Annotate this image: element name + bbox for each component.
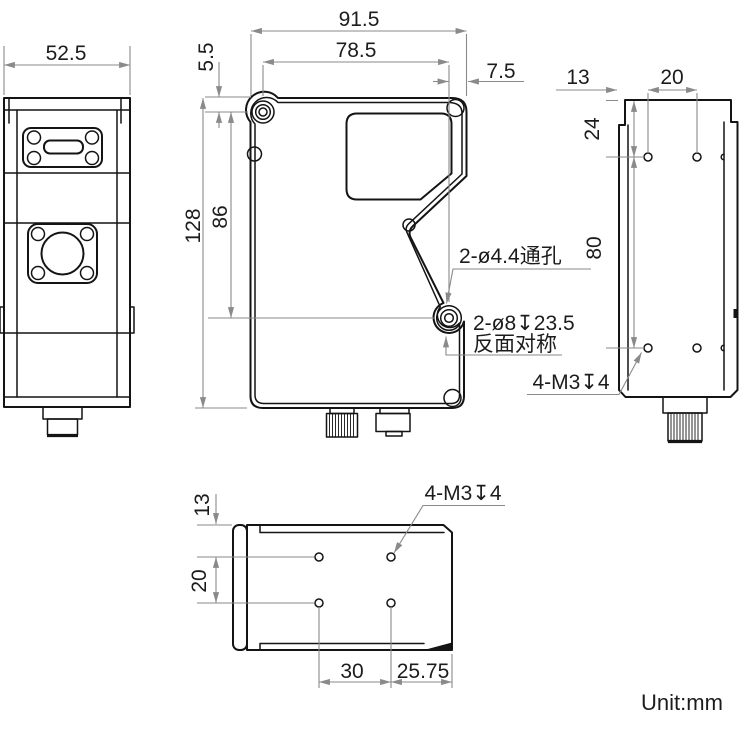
plate-screw-hole [86,152,99,165]
right-tapped-hole [644,344,652,352]
dimension-drawing: 52.5 [0,0,746,729]
right-tapped-hole [693,344,701,352]
plate-slot [44,141,83,154]
annotation-bottom-tapped: 4-M3↧4 [424,482,501,505]
front-view: 91.5 78.5 5.5 7.5 128 86 2-ø4.4通孔 2-ø8↧2… [182,8,591,437]
left-top-connector-plate [23,128,102,167]
left-side-view: 52.5 [0,42,134,436]
dim-bottom-hole-span-v: 20 [188,569,211,592]
front-view-geometry [246,92,466,437]
bottom-left-rail [233,525,247,650]
bottom-inner-steps [260,525,444,650]
dim-bottom-hole-span-h: 30 [340,660,363,683]
dim-front-hole-span: 78.5 [336,39,377,62]
front-body-outline [246,92,466,408]
plate-screw-hole [28,131,41,144]
annotation-right-tapped: 4-M3↧4 [532,371,609,394]
left-view-geometry [0,98,134,436]
front-window-outline [347,114,452,200]
lens-circle [42,233,84,275]
flange-screw-hole [32,228,45,241]
left-lens-flange [28,224,97,283]
right-body-outline [619,100,738,397]
unit-label: Unit:mm [641,690,723,715]
bottom-tapped-hole [315,599,323,607]
dim-right-hole-span: 20 [660,66,683,89]
bottom-right-chamfer [424,643,452,651]
front-view-annotations: 2-ø4.4通孔 2-ø8↧23.5 反面对称 [446,245,591,356]
left-bottom-connector [43,407,82,436]
dim-bottom-top-offset: 13 [191,493,214,516]
left-view-dimensions: 52.5 [4,42,130,95]
dim-bottom-right-offset: 25.75 [397,660,450,683]
right-view-geometry [619,100,738,442]
front-connector-2 [376,408,410,436]
annotation-counterbore: 2-ø8↧23.5 [473,312,575,335]
plate-screw-hole [86,131,99,144]
front-connector-1 [327,408,358,437]
flange-screw-hole [81,228,94,241]
dim-front-hole-height: 86 [209,205,232,228]
front-counterbore-hole-bottom-right [437,306,462,331]
dim-right-left-offset: 13 [566,66,589,89]
plate-screw-hole [28,152,41,165]
right-view-annotations: 4-M3↧4 [527,353,642,395]
right-edge-notch [734,309,738,318]
right-tapped-hole [693,153,701,161]
right-view-dimensions: 13 20 24 80 [556,66,697,348]
front-body-inner-line [251,98,462,404]
dim-front-top-offset: 5.5 [195,42,218,71]
annotation-counterbore-note: 反面对称 [473,333,557,356]
right-side-rails [628,122,724,390]
dim-right-hole-height: 80 [583,236,606,259]
dim-front-height: 128 [182,208,205,243]
dim-front-width: 91.5 [339,8,380,31]
bottom-view: 13 20 30 25.75 4-M3↧4 [188,482,505,688]
front-counterbore-hole-top-left [252,101,274,123]
right-bottom-connector [663,397,707,442]
bottom-body-outline [247,525,452,650]
annotation-through-holes: 2-ø4.4通孔 [459,245,562,268]
bottom-view-geometry [233,525,452,650]
flange-screw-hole [81,267,94,280]
engineering-drawing-page: 52.5 [0,0,746,729]
right-tapped-hole [644,153,652,161]
dim-left-width: 52.5 [46,42,87,65]
flange-screw-hole [32,267,45,280]
dim-front-right-offset: 7.5 [486,60,515,83]
bottom-tapped-hole [387,599,395,607]
bottom-view-annotations: 4-M3↧4 [394,482,505,553]
dim-right-top-offset: 24 [581,117,604,141]
left-side-steps [0,307,134,333]
bottom-tapped-hole [387,553,395,561]
bottom-tapped-hole [315,553,323,561]
